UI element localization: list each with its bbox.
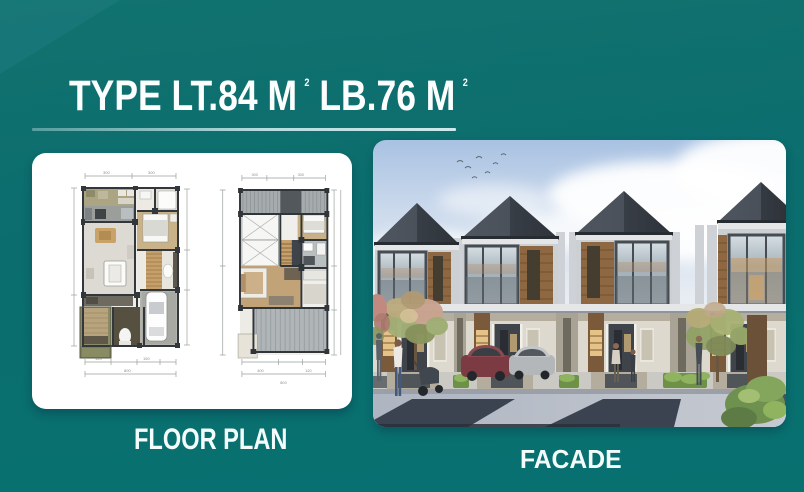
svg-text:300: 300 [298, 172, 305, 177]
svg-text:300: 300 [148, 170, 155, 175]
svg-text:300: 300 [252, 172, 259, 177]
svg-text:800: 800 [280, 380, 287, 385]
svg-text:120: 120 [305, 368, 312, 373]
svg-text:400: 400 [257, 368, 264, 373]
svg-text:150: 150 [143, 356, 150, 361]
svg-text:800: 800 [124, 368, 131, 373]
svg-text:300: 300 [103, 170, 110, 175]
